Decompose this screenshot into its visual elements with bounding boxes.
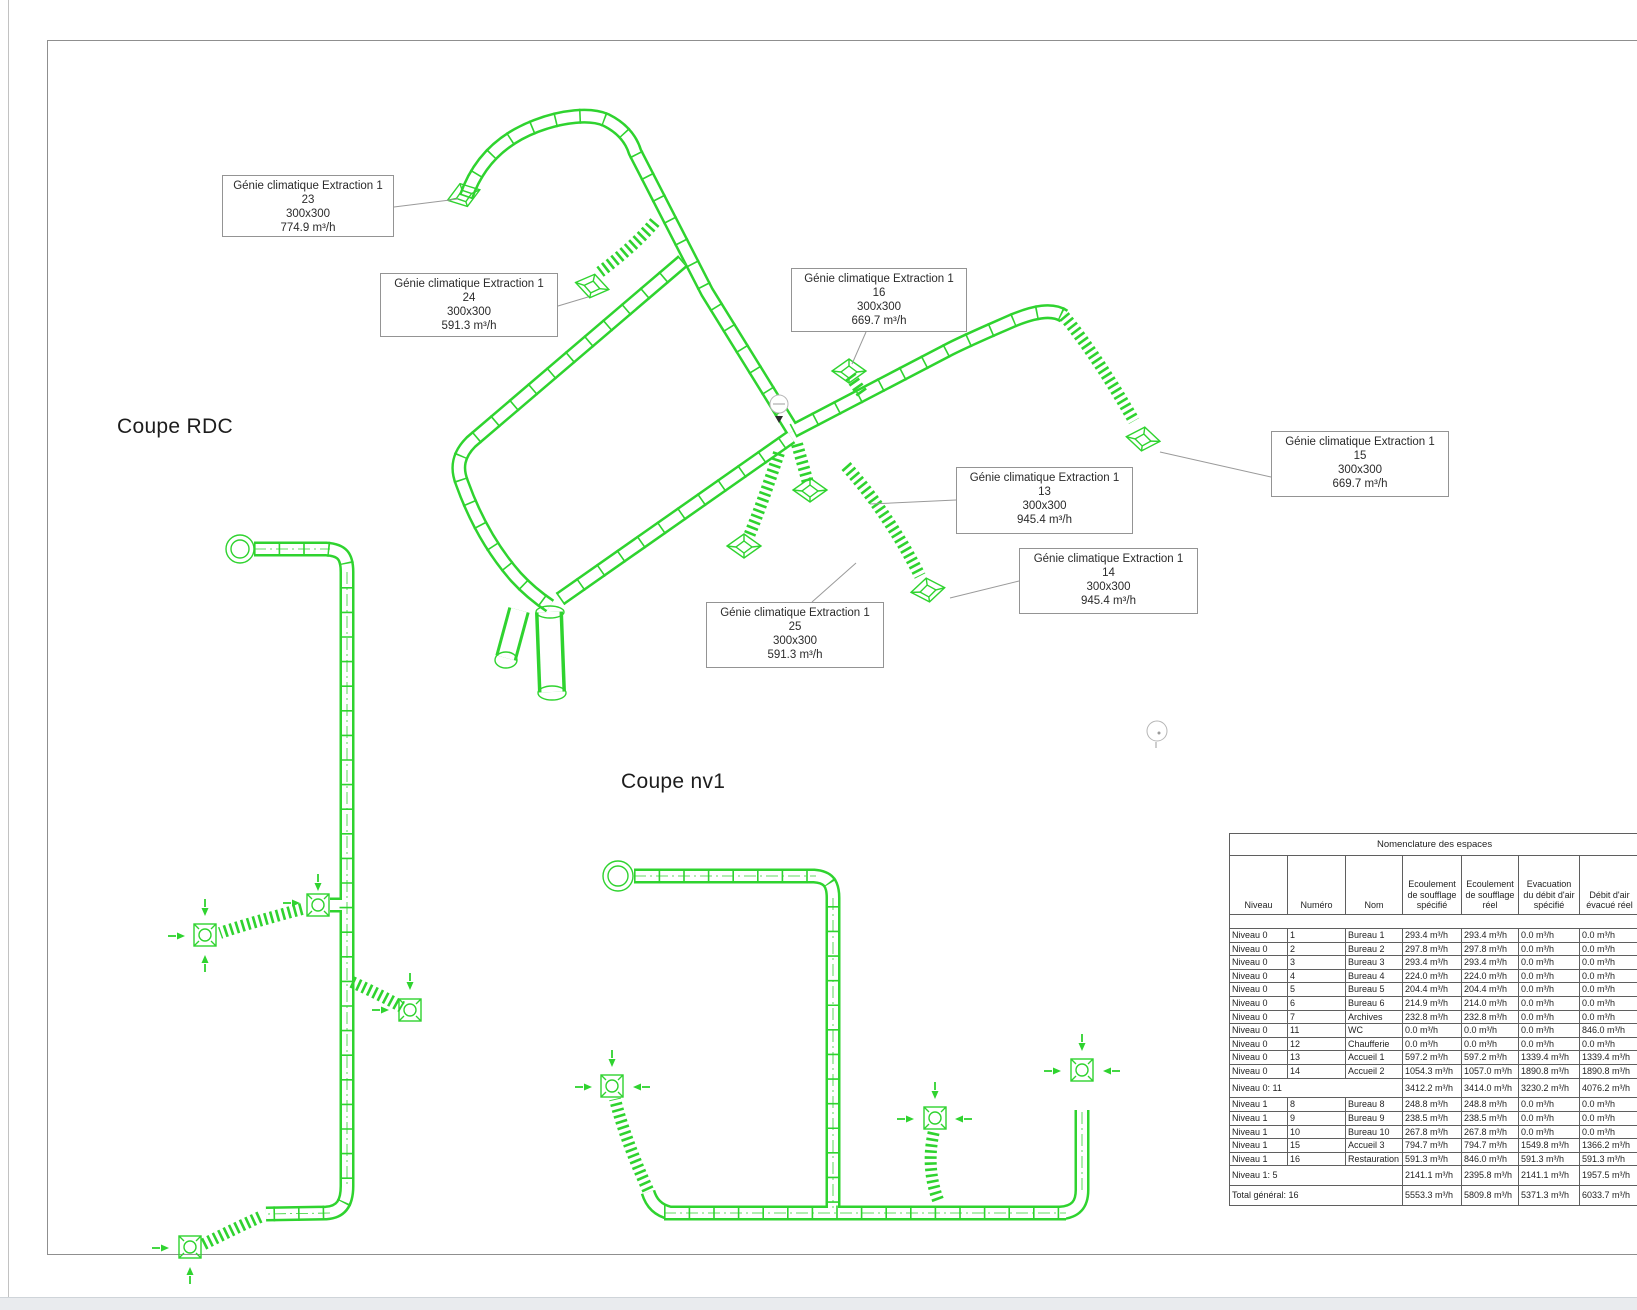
nv1-left-duct-network	[152, 535, 421, 1284]
table-title-row: Nomenclature des espaces	[1230, 834, 1637, 856]
table-cell: Accueil 3	[1346, 1139, 1403, 1153]
table-cell	[1230, 915, 1637, 929]
table-cell: 0.0 m³/h	[1519, 997, 1580, 1011]
table-cell: 3230.2 m³/h	[1519, 1078, 1580, 1098]
table-cell: 597.2 m³/h	[1462, 1051, 1519, 1065]
view-title-coupe-nv1: Coupe nv1	[621, 770, 725, 794]
table-cell: 4	[1288, 969, 1346, 983]
table-cell: Niveau 0	[1230, 1051, 1288, 1065]
column-header: Ecoulement de soufflage réel	[1462, 856, 1519, 915]
table-cell: Archives	[1346, 1010, 1403, 1024]
duct-tag-14: Génie climatique Extraction 1 14 300x300…	[1019, 548, 1198, 614]
tag-title: Génie climatique Extraction 1	[1274, 435, 1446, 449]
table-row: Niveau 110Bureau 10267.8 m³/h267.8 m³/h0…	[1230, 1125, 1637, 1139]
table-cell: WC	[1346, 1024, 1403, 1038]
table-cell: 1549.8 m³/h	[1519, 1139, 1580, 1153]
summary-row: Niveau 1: 52141.1 m³/h2395.8 m³/h2141.1 …	[1230, 1166, 1637, 1186]
table-cell: Total général: 16	[1230, 1185, 1403, 1205]
tag-flow: 669.7 m³/h	[794, 314, 964, 328]
table-cell: 267.8 m³/h	[1403, 1125, 1462, 1139]
table-cell: 0.0 m³/h	[1580, 1037, 1637, 1051]
duct-tag-16: Génie climatique Extraction 1 16 300x300…	[791, 268, 967, 332]
table-cell: Accueil 2	[1346, 1065, 1403, 1079]
table-cell: 267.8 m³/h	[1462, 1125, 1519, 1139]
table-cell: Niveau 1: 5	[1230, 1166, 1403, 1186]
tag-title: Génie climatique Extraction 1	[383, 277, 555, 291]
table-row: Niveau 05Bureau 5204.4 m³/h204.4 m³/h0.0…	[1230, 983, 1637, 997]
table-cell: 597.2 m³/h	[1403, 1051, 1462, 1065]
column-header: Evacuation du débit d'air spécifié	[1519, 856, 1580, 915]
table-cell: Bureau 2	[1346, 942, 1403, 956]
table-cell: 794.7 m³/h	[1462, 1139, 1519, 1153]
table-cell: 846.0 m³/h	[1580, 1024, 1637, 1038]
table-cell: 2141.1 m³/h	[1519, 1166, 1580, 1186]
table-cell: 293.4 m³/h	[1403, 956, 1462, 970]
table-cell: 11	[1288, 1024, 1346, 1038]
table-cell: 214.9 m³/h	[1403, 997, 1462, 1011]
table-row: Niveau 116Restauration591.3 m³/h846.0 m³…	[1230, 1152, 1637, 1166]
tag-title: Génie climatique Extraction 1	[225, 179, 391, 193]
table-cell: Niveau 0	[1230, 942, 1288, 956]
tag-size: 300x300	[225, 207, 391, 221]
table-cell: 0.0 m³/h	[1519, 942, 1580, 956]
tag-size: 300x300	[1022, 580, 1195, 594]
nomenclature-table: Nomenclature des espaces NiveauNuméroNom…	[1229, 833, 1637, 1206]
table-row: Niveau 03Bureau 3293.4 m³/h293.4 m³/h0.0…	[1230, 956, 1637, 970]
tag-title: Génie climatique Extraction 1	[709, 606, 881, 620]
table-cell: Bureau 9	[1346, 1111, 1403, 1125]
view-title-coupe-rdc: Coupe RDC	[117, 415, 233, 439]
table-cell: 14	[1288, 1065, 1346, 1079]
section-marker-icon	[1147, 721, 1167, 748]
table-row: Niveau 02Bureau 2297.8 m³/h297.8 m³/h0.0…	[1230, 942, 1637, 956]
table-row: Niveau 06Bureau 6214.9 m³/h214.0 m³/h0.0…	[1230, 997, 1637, 1011]
table-cell: 0.0 m³/h	[1519, 1125, 1580, 1139]
table-cell: 0.0 m³/h	[1580, 1098, 1637, 1112]
table-cell: 591.3 m³/h	[1580, 1152, 1637, 1166]
table-cell: Niveau 0	[1230, 1010, 1288, 1024]
table-cell: 0.0 m³/h	[1462, 1024, 1519, 1038]
table-cell: 0.0 m³/h	[1519, 956, 1580, 970]
summary-row: Total général: 165553.3 m³/h5809.8 m³/h5…	[1230, 1185, 1637, 1205]
table-cell: 0.0 m³/h	[1403, 1037, 1462, 1051]
tag-flow: 774.9 m³/h	[225, 221, 391, 235]
table-cell: 5	[1288, 983, 1346, 997]
tag-flow: 669.7 m³/h	[1274, 477, 1446, 491]
table-cell: Niveau 0	[1230, 929, 1288, 943]
table-cell: 224.0 m³/h	[1403, 969, 1462, 983]
table-cell: 1957.5 m³/h	[1580, 1166, 1637, 1186]
table-cell: 2	[1288, 942, 1346, 956]
diffuser-icon	[601, 1059, 1093, 1129]
table-cell: 0.0 m³/h	[1580, 1010, 1637, 1024]
table-cell: 5809.8 m³/h	[1462, 1185, 1519, 1205]
table-cell: 214.0 m³/h	[1462, 997, 1519, 1011]
tag-number: 14	[1022, 566, 1195, 580]
table-cell: 16	[1288, 1152, 1346, 1166]
tag-number: 16	[794, 286, 964, 300]
table-cell: 297.8 m³/h	[1462, 942, 1519, 956]
duct-tag-23: Génie climatique Extraction 1 23 300x300…	[222, 175, 394, 237]
tag-size: 300x300	[1274, 463, 1446, 477]
table-cell: 1339.4 m³/h	[1580, 1051, 1637, 1065]
table-cell: 3412.2 m³/h	[1403, 1078, 1462, 1098]
table-cell: Niveau 1	[1230, 1152, 1288, 1166]
tag-flow: 945.4 m³/h	[959, 513, 1130, 527]
table-row: Niveau 04Bureau 4224.0 m³/h224.0 m³/h0.0…	[1230, 969, 1637, 983]
table-cell: Restauration	[1346, 1152, 1403, 1166]
table-cell: Niveau 0: 11	[1230, 1078, 1403, 1098]
table-cell: 0.0 m³/h	[1519, 929, 1580, 943]
duct-tag-25: Génie climatique Extraction 1 25 300x300…	[706, 602, 884, 668]
tag-number: 15	[1274, 449, 1446, 463]
table-title: Nomenclature des espaces	[1230, 834, 1637, 856]
table-row: Niveau 012Chaufferie0.0 m³/h0.0 m³/h0.0 …	[1230, 1037, 1637, 1051]
table-cell: 8	[1288, 1098, 1346, 1112]
flow-arrow-icon	[152, 874, 414, 1284]
table-cell: 0.0 m³/h	[1519, 1010, 1580, 1024]
table-cell: Niveau 0	[1230, 997, 1288, 1011]
table-cell: 204.4 m³/h	[1403, 983, 1462, 997]
table-cell: 224.0 m³/h	[1462, 969, 1519, 983]
spacer-row	[1230, 915, 1637, 929]
table-cell: Niveau 1	[1230, 1139, 1288, 1153]
table-cell: 10	[1288, 1125, 1346, 1139]
table-cell: Niveau 0	[1230, 1024, 1288, 1038]
table-cell: 232.8 m³/h	[1462, 1010, 1519, 1024]
table-cell: 4076.2 m³/h	[1580, 1078, 1637, 1098]
table-cell: Bureau 8	[1346, 1098, 1403, 1112]
table-cell: Niveau 0	[1230, 983, 1288, 997]
table-cell: Niveau 1	[1230, 1125, 1288, 1139]
sheet: { "colors": { "duct_green": "#2fd32f" },…	[0, 0, 1637, 1309]
tag-size: 300x300	[383, 305, 555, 319]
table-cell: Niveau 1	[1230, 1111, 1288, 1125]
table-cell: 297.8 m³/h	[1403, 942, 1462, 956]
table-cell: Niveau 1	[1230, 1098, 1288, 1112]
table-cell: Bureau 3	[1346, 956, 1403, 970]
table-cell: 3414.0 m³/h	[1462, 1078, 1519, 1098]
table-cell: 1890.8 m³/h	[1580, 1065, 1637, 1079]
table-cell: 9	[1288, 1111, 1346, 1125]
table-cell: 2395.8 m³/h	[1462, 1166, 1519, 1186]
table-cell: 293.4 m³/h	[1462, 929, 1519, 943]
table-cell: 794.7 m³/h	[1403, 1139, 1462, 1153]
table-cell: 0.0 m³/h	[1580, 983, 1637, 997]
table-cell: Bureau 1	[1346, 929, 1403, 943]
column-header: Numéro	[1288, 856, 1346, 915]
table-row: Niveau 013Accueil 1597.2 m³/h597.2 m³/h1…	[1230, 1051, 1637, 1065]
tag-size: 300x300	[794, 300, 964, 314]
table-cell: 248.8 m³/h	[1403, 1098, 1462, 1112]
table-cell: 2141.1 m³/h	[1403, 1166, 1462, 1186]
table-cell: 846.0 m³/h	[1462, 1152, 1519, 1166]
table-cell: 3	[1288, 956, 1346, 970]
table-cell: 0.0 m³/h	[1580, 929, 1637, 943]
table-header-row: NiveauNuméroNomEcoulement de soufflage s…	[1230, 856, 1637, 915]
table-cell: 7	[1288, 1010, 1346, 1024]
column-header: Ecoulement de soufflage spécifié	[1403, 856, 1462, 915]
table-cell: 0.0 m³/h	[1462, 1037, 1519, 1051]
table-cell: 0.0 m³/h	[1519, 969, 1580, 983]
table-row: Niveau 01Bureau 1293.4 m³/h293.4 m³/h0.0…	[1230, 929, 1637, 943]
table-cell: 0.0 m³/h	[1519, 1111, 1580, 1125]
table-row: Niveau 19Bureau 9238.5 m³/h238.5 m³/h0.0…	[1230, 1111, 1637, 1125]
tag-title: Génie climatique Extraction 1	[794, 272, 964, 286]
table-cell: 591.3 m³/h	[1519, 1152, 1580, 1166]
table-cell: Niveau 0	[1230, 956, 1288, 970]
table-cell: Bureau 6	[1346, 997, 1403, 1011]
table-cell: 5371.3 m³/h	[1519, 1185, 1580, 1205]
tag-title: Génie climatique Extraction 1	[959, 471, 1130, 485]
table-cell: 1057.0 m³/h	[1462, 1065, 1519, 1079]
table-cell: 591.3 m³/h	[1403, 1152, 1462, 1166]
table-cell: 0.0 m³/h	[1519, 1098, 1580, 1112]
tag-flow: 591.3 m³/h	[383, 319, 555, 333]
table-cell: Bureau 10	[1346, 1125, 1403, 1139]
tag-title: Génie climatique Extraction 1	[1022, 552, 1195, 566]
flex-duct	[202, 909, 402, 1245]
nv1-center-duct-network	[575, 861, 1120, 1213]
table-cell: Bureau 4	[1346, 969, 1403, 983]
table-cell: 238.5 m³/h	[1403, 1111, 1462, 1125]
summary-row: Niveau 0: 113412.2 m³/h3414.0 m³/h3230.2…	[1230, 1078, 1637, 1098]
table-cell: Bureau 5	[1346, 983, 1403, 997]
table-cell: 293.4 m³/h	[1403, 929, 1462, 943]
table-cell: 1054.3 m³/h	[1403, 1065, 1462, 1079]
table-cell: 1	[1288, 929, 1346, 943]
table-cell: 6	[1288, 997, 1346, 1011]
table-cell: 0.0 m³/h	[1519, 983, 1580, 997]
table-cell: 293.4 m³/h	[1462, 956, 1519, 970]
table-cell: 0.0 m³/h	[1580, 956, 1637, 970]
table-cell: 238.5 m³/h	[1462, 1111, 1519, 1125]
table-cell: 0.0 m³/h	[1403, 1024, 1462, 1038]
table-cell: 248.8 m³/h	[1462, 1098, 1519, 1112]
table-cell: 0.0 m³/h	[1580, 1111, 1637, 1125]
column-header: Débit d'air évacué réel	[1580, 856, 1637, 915]
table-body: Niveau 01Bureau 1293.4 m³/h293.4 m³/h0.0…	[1230, 915, 1637, 1206]
tag-number: 23	[225, 193, 391, 207]
table-row: Niveau 115Accueil 3794.7 m³/h794.7 m³/h1…	[1230, 1139, 1637, 1153]
table-cell: 5553.3 m³/h	[1403, 1185, 1462, 1205]
table-cell: Niveau 0	[1230, 1037, 1288, 1051]
table-cell: 0.0 m³/h	[1580, 942, 1637, 956]
diffuser-icon	[444, 178, 1162, 604]
table-cell: 0.0 m³/h	[1519, 1037, 1580, 1051]
table-row: Niveau 07Archives232.8 m³/h232.8 m³/h0.0…	[1230, 1010, 1637, 1024]
flow-arrow-icon	[575, 1034, 1120, 1123]
column-header: Niveau	[1230, 856, 1288, 915]
duct-tag-13: Génie climatique Extraction 1 13 300x300…	[956, 467, 1133, 534]
table-cell: 1339.4 m³/h	[1519, 1051, 1580, 1065]
tag-number: 24	[383, 291, 555, 305]
tag-flow: 945.4 m³/h	[1022, 594, 1195, 608]
table-cell: 13	[1288, 1051, 1346, 1065]
table-cell: 6033.7 m³/h	[1580, 1185, 1637, 1205]
table-cell: Niveau 0	[1230, 969, 1288, 983]
table-row: Niveau 014Accueil 21054.3 m³/h1057.0 m³/…	[1230, 1065, 1637, 1079]
flex-duct	[615, 1099, 938, 1200]
table-cell: Niveau 0	[1230, 1065, 1288, 1079]
table-cell: 0.0 m³/h	[1580, 969, 1637, 983]
table-cell: 1366.2 m³/h	[1580, 1139, 1637, 1153]
table-cell: Chaufferie	[1346, 1037, 1403, 1051]
table-cell: 12	[1288, 1037, 1346, 1051]
table-cell: 1890.8 m³/h	[1519, 1065, 1580, 1079]
table-cell: 0.0 m³/h	[1580, 997, 1637, 1011]
table-cell: 0.0 m³/h	[1580, 1125, 1637, 1139]
duct-tag-15: Génie climatique Extraction 1 15 300x300…	[1271, 431, 1449, 497]
table-cell: 232.8 m³/h	[1403, 1010, 1462, 1024]
table-row: Niveau 18Bureau 8248.8 m³/h248.8 m³/h0.0…	[1230, 1098, 1637, 1112]
tag-size: 300x300	[959, 499, 1130, 513]
tag-size: 300x300	[709, 634, 881, 648]
tag-flow: 591.3 m³/h	[709, 648, 881, 662]
table-cell: Accueil 1	[1346, 1051, 1403, 1065]
tag-number: 13	[959, 485, 1130, 499]
column-header: Nom	[1346, 856, 1403, 915]
diffuser-icon	[179, 894, 421, 1258]
table-cell: 0.0 m³/h	[1519, 1024, 1580, 1038]
table-cell: 204.4 m³/h	[1462, 983, 1519, 997]
table-row: Niveau 011WC0.0 m³/h0.0 m³/h0.0 m³/h846.…	[1230, 1024, 1637, 1038]
table-cell: 15	[1288, 1139, 1346, 1153]
tag-number: 25	[709, 620, 881, 634]
duct-tag-24: Génie climatique Extraction 1 24 300x300…	[380, 273, 558, 337]
